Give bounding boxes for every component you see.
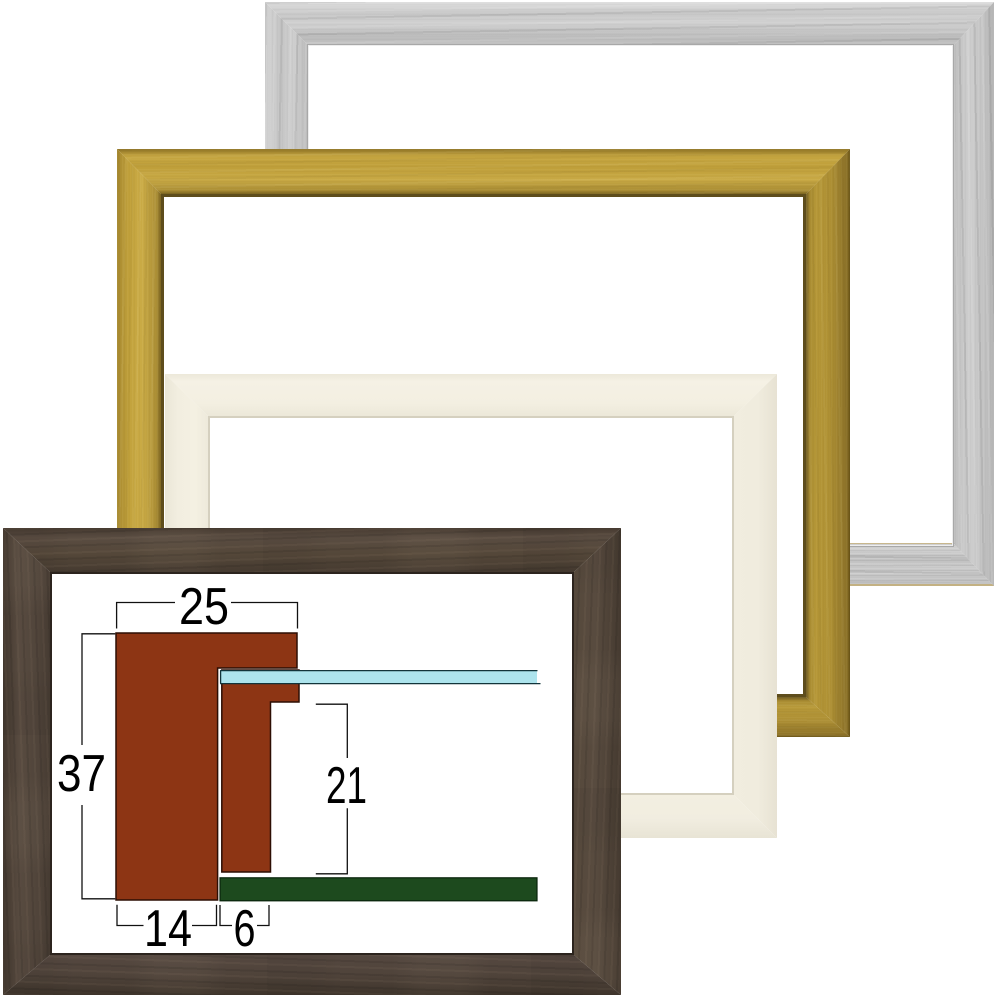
svg-text:21: 21 [326, 757, 367, 815]
svg-text:14: 14 [144, 900, 192, 958]
svg-text:25: 25 [179, 578, 229, 636]
svg-text:6: 6 [234, 900, 256, 958]
svg-text:37: 37 [57, 745, 106, 803]
